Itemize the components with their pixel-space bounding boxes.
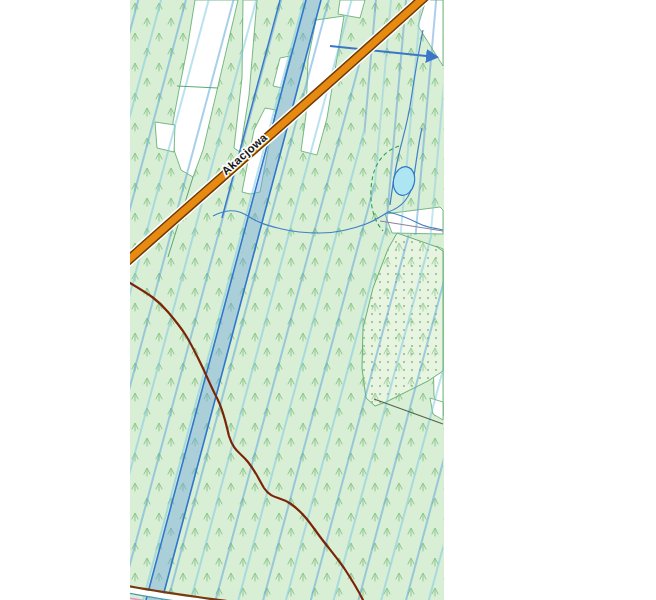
- screenshot-root: Akacjowa: [0, 0, 656, 600]
- left-margin: [0, 0, 130, 600]
- map-viewport[interactable]: Akacjowa: [130, 0, 444, 600]
- right-margin: [444, 0, 656, 600]
- map-canvas: Akacjowa: [130, 0, 444, 600]
